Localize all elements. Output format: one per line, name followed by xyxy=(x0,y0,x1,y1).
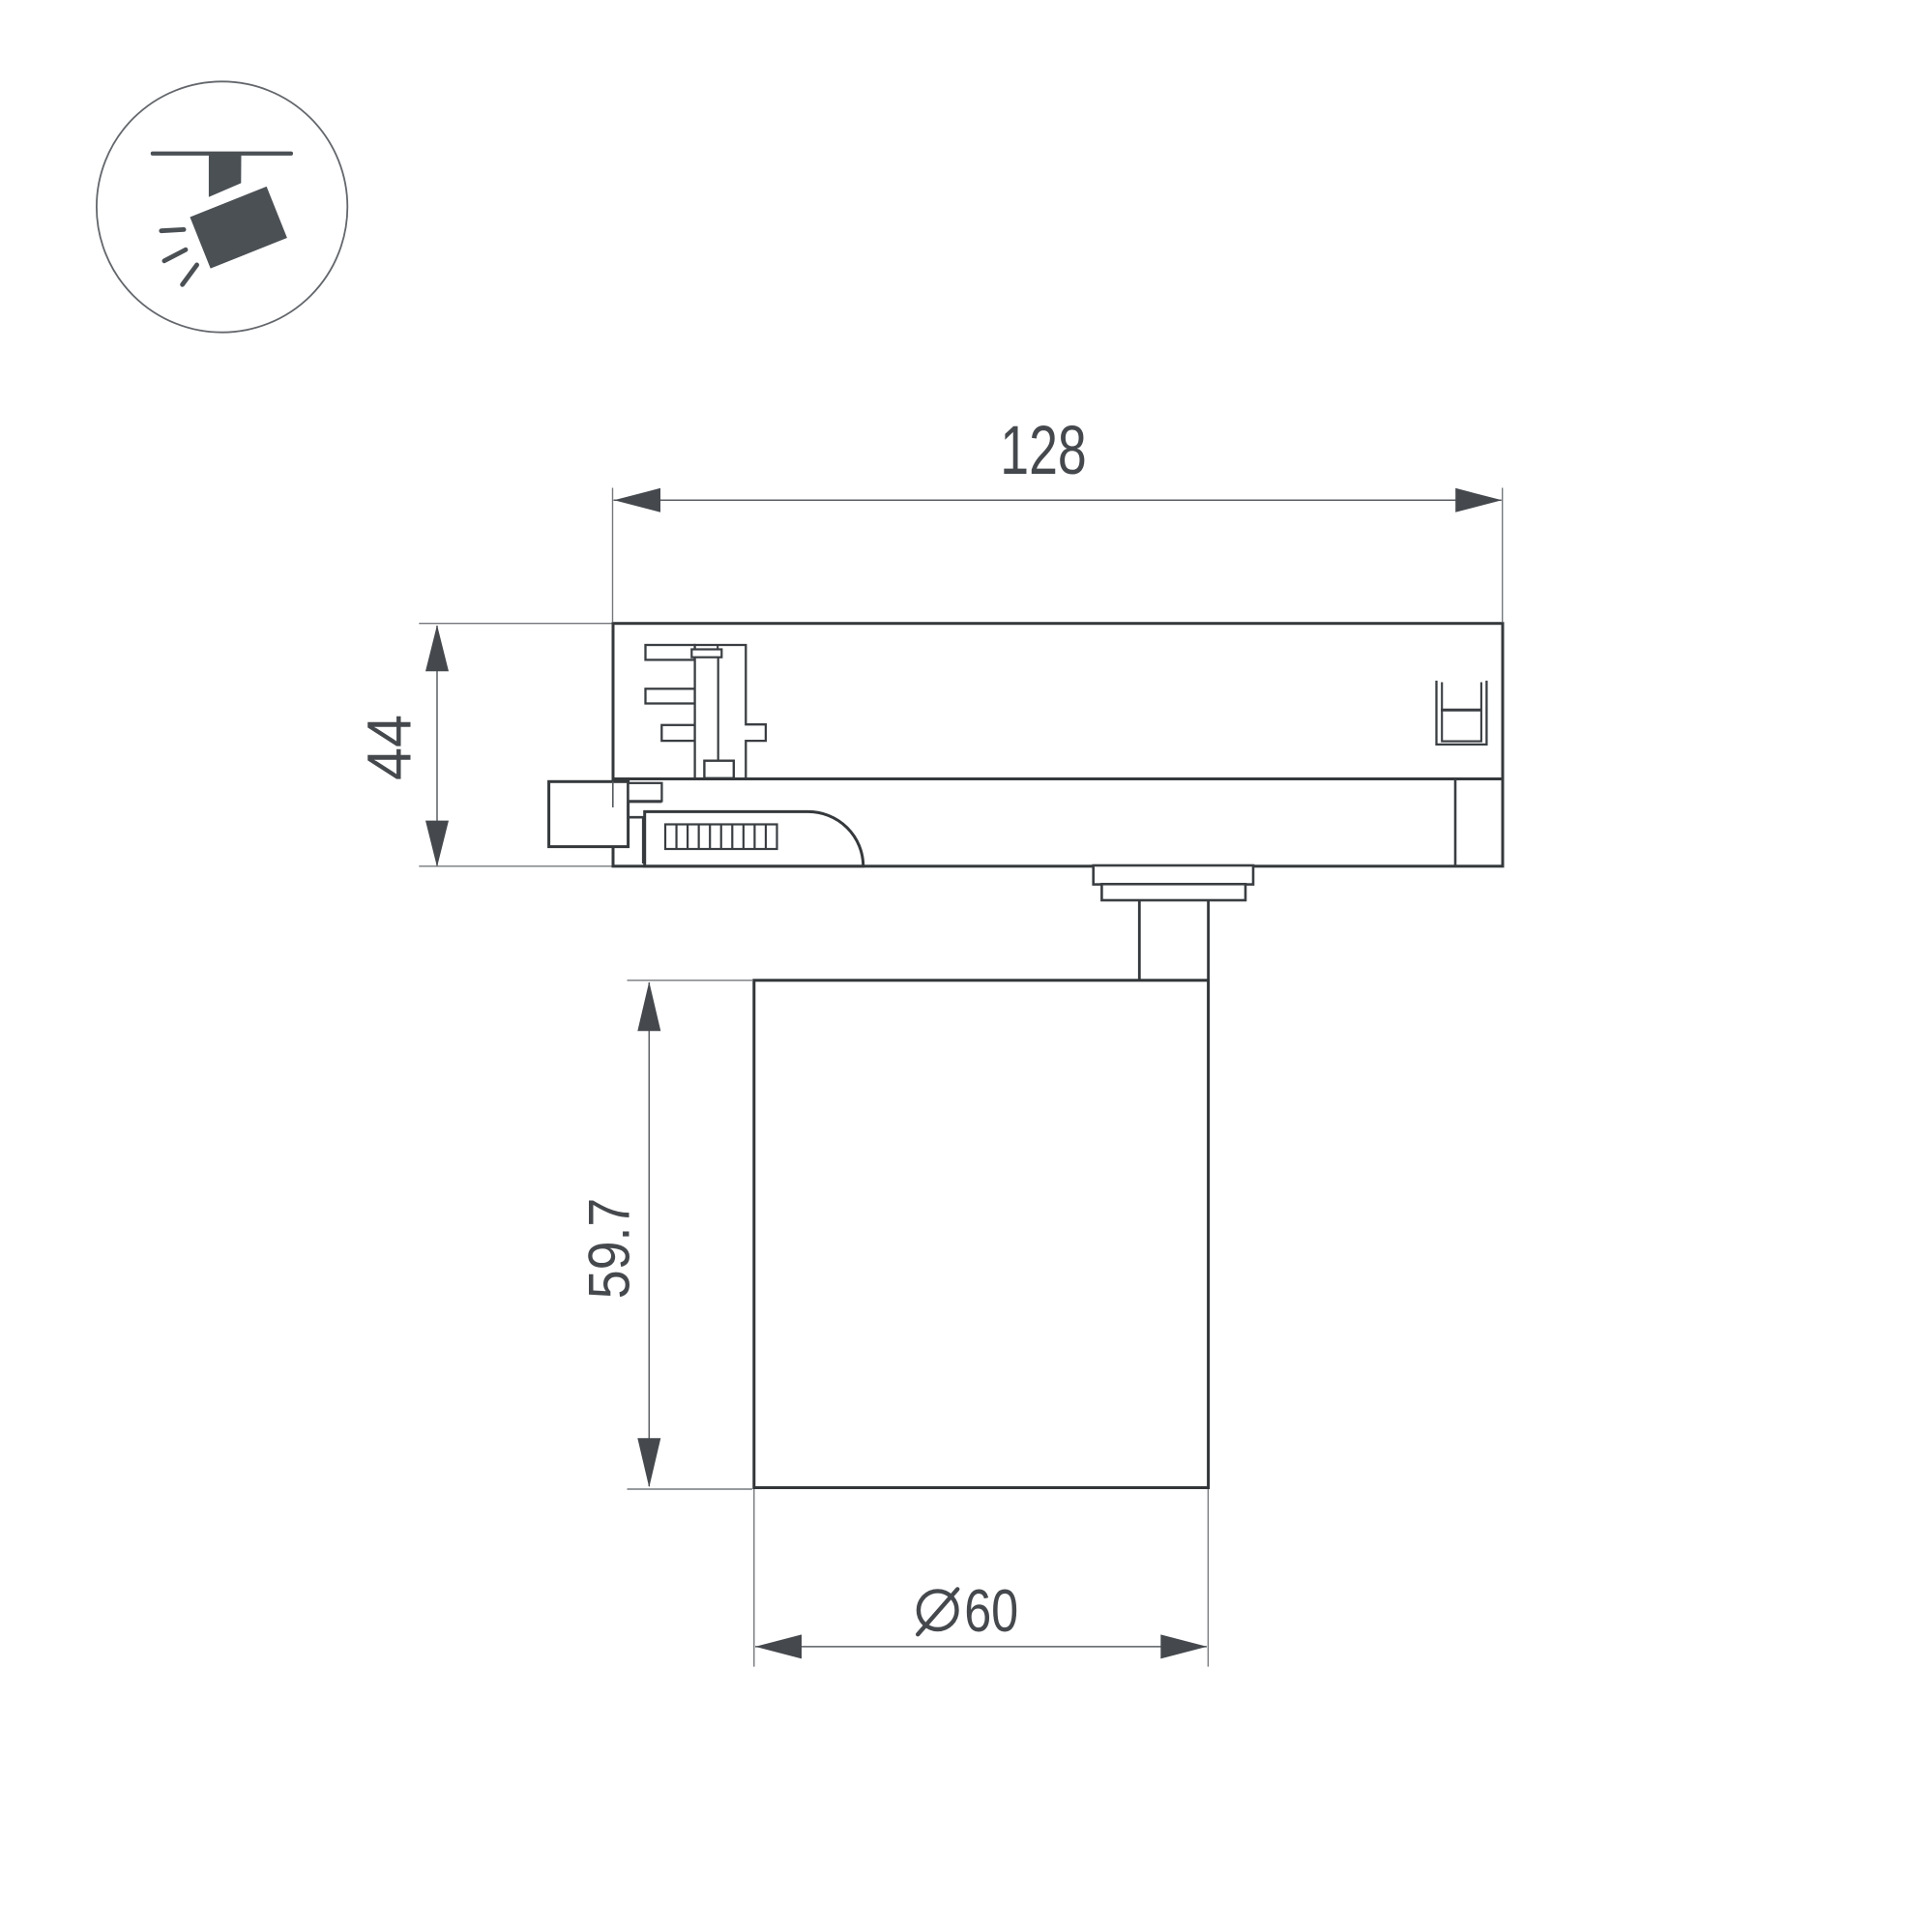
svg-text:44: 44 xyxy=(355,715,424,780)
svg-text:128: 128 xyxy=(1000,413,1087,489)
svg-text:59.7: 59.7 xyxy=(577,1198,642,1300)
svg-text:60: 60 xyxy=(964,1578,1018,1645)
